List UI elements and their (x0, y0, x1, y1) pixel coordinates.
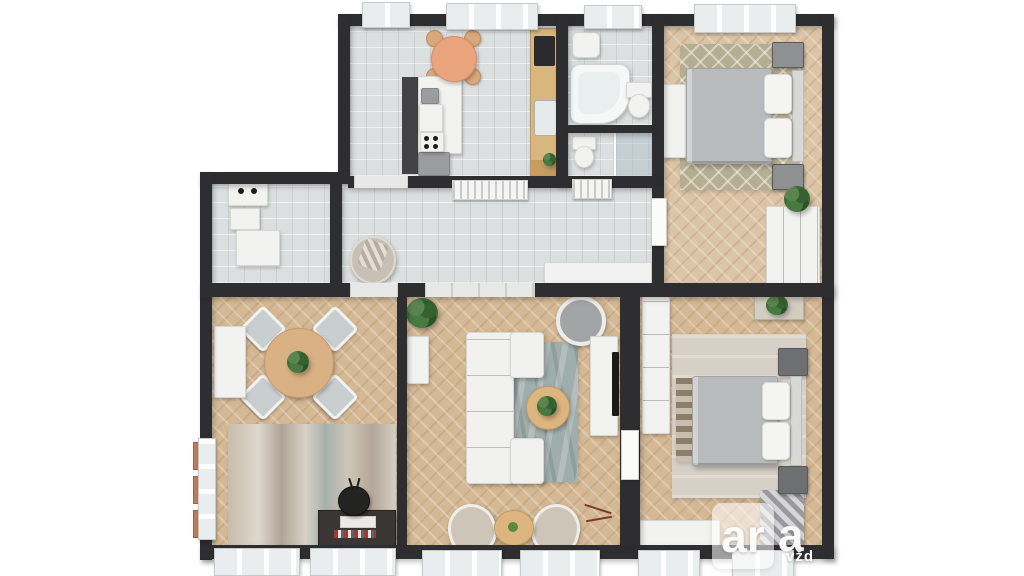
island-lower-cabinet (418, 152, 450, 176)
bedroom1-plant (784, 186, 810, 212)
island-appliance (419, 104, 443, 132)
bedroom1-bed (686, 68, 772, 164)
hallway-radiator (452, 180, 528, 200)
bedroom2-nightstand (778, 348, 808, 376)
coffee-machine (421, 88, 439, 104)
floor-plan-scene: ar a vžd (0, 0, 1024, 576)
living-room-doorway (425, 283, 535, 297)
island-back-cabinet (402, 77, 418, 174)
bedroom2-headboard (790, 376, 802, 466)
kitchen-strip-window (362, 2, 410, 28)
watermark-logo-box: ar (712, 503, 774, 569)
dining-table-plant (287, 351, 309, 373)
kitchen-plant (543, 153, 556, 166)
wall-living-bedroom2 (620, 297, 640, 545)
dining-window (310, 548, 396, 576)
wall-leftwing-top (200, 172, 348, 184)
utility-tap (251, 188, 257, 194)
bathroom-window (584, 5, 642, 29)
cooktop (534, 36, 555, 66)
bedroom2-plant (766, 295, 788, 315)
kitchen-sink (534, 100, 557, 136)
bedroom2-wardrobe (642, 296, 670, 434)
breakfast-table (431, 36, 477, 82)
living-wall-shelf (407, 336, 429, 384)
bedroom1-dresser (662, 84, 686, 158)
shower-enclosure (614, 128, 656, 180)
hob-knob (424, 144, 429, 149)
bedroom2-window (638, 550, 700, 576)
bedroom1-wardrobe (766, 206, 820, 286)
wall-kitchen-left (338, 14, 350, 184)
watermark-tagline: vžd (786, 548, 814, 565)
wall-dining-living (397, 297, 407, 545)
media-cabinet-tray (340, 516, 376, 528)
living-window (422, 550, 502, 576)
utility-cabinet (236, 230, 280, 266)
bedroom2-nightstand (778, 466, 808, 494)
living-plant (406, 298, 438, 328)
wall-bathroom-wc (568, 125, 652, 133)
media-cabinet-books (334, 530, 376, 538)
hallway-radiator (572, 179, 612, 199)
bedroom1-headboard (792, 70, 804, 162)
wc-toilet-bowl (574, 146, 594, 168)
sofa-chaise-bottom (510, 438, 544, 484)
side-table-decor (508, 522, 518, 532)
hob-knob (433, 144, 438, 149)
kitchen-window (446, 3, 538, 30)
kitchen-doorway (354, 176, 408, 188)
utility-tap (238, 188, 244, 194)
coffee-table-plant (537, 396, 557, 416)
wall-kitchen-bathroom (556, 14, 568, 186)
bedroom2-pillow (762, 422, 790, 460)
bedroom2-door (621, 430, 639, 480)
bedroom1-door (651, 198, 667, 246)
living-window (520, 550, 600, 576)
dining-doorway (350, 283, 398, 297)
toilet-bowl (628, 94, 650, 118)
black-pot (338, 486, 370, 516)
dining-window (214, 548, 300, 576)
hob-knob-panel (420, 132, 444, 152)
bedroom1-nightstand (772, 42, 804, 68)
wall-utility-hallway (330, 184, 342, 284)
watermark-logo-box-text: ar (721, 509, 764, 563)
hob-knob (433, 136, 438, 141)
utility-shelf (230, 208, 260, 230)
sofa-spine (466, 332, 514, 484)
bedroom1-pillow (764, 74, 792, 114)
bedroom1-pillow (764, 118, 792, 158)
sofa-chaise-top (510, 332, 544, 378)
dining-side-cabinet (214, 326, 246, 398)
bedroom1-window (694, 4, 796, 33)
tv (612, 352, 619, 416)
wall-bathroom-bedroom1 (652, 14, 664, 186)
bedroom2-pillow (762, 382, 790, 420)
hob-knob (424, 136, 429, 141)
washbasin (572, 32, 600, 58)
dining-side-window (198, 438, 216, 540)
